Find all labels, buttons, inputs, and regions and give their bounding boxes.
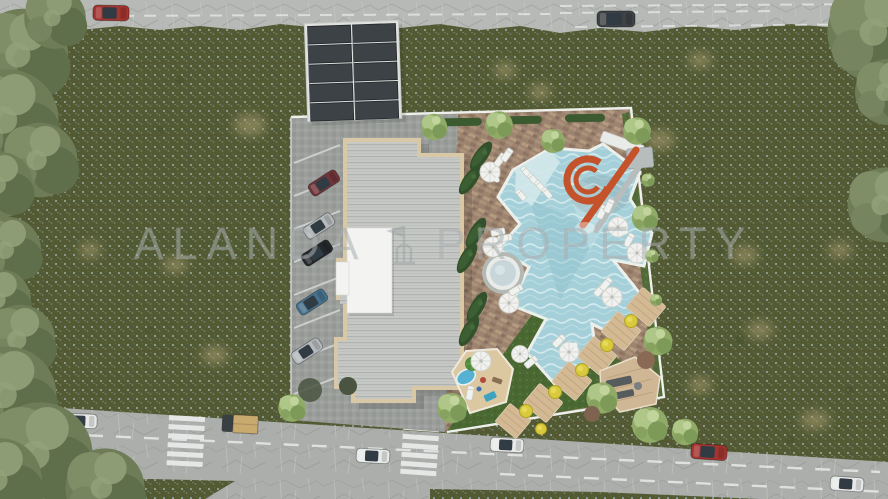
parasol	[627, 243, 647, 263]
apartment-building	[334, 138, 472, 409]
yellow-bush	[520, 405, 533, 418]
tree	[623, 117, 651, 145]
fence-bush	[641, 173, 654, 186]
red-bush	[637, 351, 655, 369]
aerial-site-render: ALANDA PROPERTY	[0, 0, 888, 499]
play-item-blue	[477, 387, 482, 392]
elevator-core	[347, 228, 392, 313]
yellow-bush	[625, 315, 638, 328]
splash-zone	[575, 222, 595, 234]
tree	[672, 419, 698, 445]
car-dark-top-road	[597, 11, 635, 27]
tree	[421, 114, 447, 140]
fence-bush	[650, 294, 662, 306]
car-white-bottom-road-4	[830, 476, 864, 492]
parasol	[499, 293, 519, 313]
car-red-top-road	[93, 5, 129, 21]
lounge-table	[634, 382, 642, 390]
red-bush	[584, 406, 600, 422]
tree	[632, 205, 658, 231]
fence-bush	[645, 249, 658, 262]
dark-bush	[339, 377, 357, 395]
solar-panel-canopy	[304, 20, 406, 125]
car-red-bottom-road	[690, 443, 727, 461]
car-white-bottom-road-2	[356, 448, 390, 464]
car-white-bottom-road-3	[490, 437, 524, 453]
tree	[541, 129, 565, 153]
stair-core	[336, 262, 349, 295]
tree	[632, 407, 668, 443]
tree	[278, 394, 306, 422]
yellow-bush	[601, 339, 614, 352]
play-item-red	[480, 377, 486, 383]
yellow-bush	[535, 423, 546, 434]
yellow-bush	[549, 386, 562, 399]
tree	[437, 393, 467, 423]
parasol	[471, 351, 491, 371]
parasol	[512, 346, 529, 363]
truck-tan-bottom-road	[222, 414, 259, 434]
tree	[485, 111, 513, 139]
yellow-bush	[576, 364, 589, 377]
tree	[644, 327, 673, 356]
